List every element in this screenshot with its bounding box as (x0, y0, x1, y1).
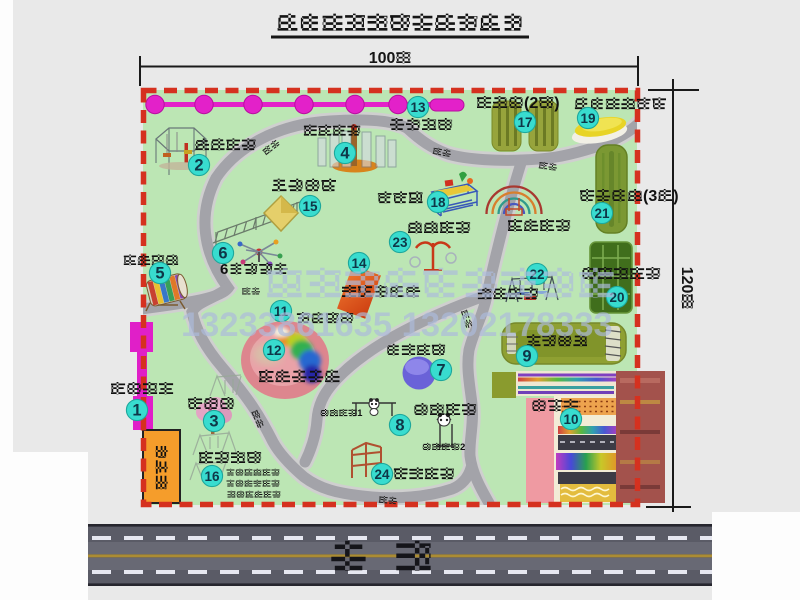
svg-text:17: 17 (517, 115, 532, 130)
svg-text:16: 16 (204, 469, 220, 484)
svg-text:1: 1 (357, 408, 362, 418)
svg-text:100: 100 (369, 50, 396, 67)
svg-text:21: 21 (594, 206, 610, 221)
svg-text:): ) (673, 188, 678, 205)
svg-text:6: 6 (218, 245, 227, 263)
svg-text:24: 24 (374, 467, 390, 482)
svg-text:3: 3 (209, 413, 218, 431)
svg-text:120: 120 (678, 267, 695, 294)
svg-text:9: 9 (522, 348, 531, 366)
svg-text:2: 2 (194, 157, 203, 175)
svg-text:19: 19 (580, 111, 595, 126)
svg-text:12: 12 (266, 343, 281, 358)
svg-text:8: 8 (395, 417, 404, 435)
svg-text:(3: (3 (643, 188, 657, 205)
svg-text:13233861635 13202178333: 13233861635 13202178333 (181, 306, 613, 344)
svg-text:20: 20 (609, 290, 624, 305)
svg-text:13: 13 (410, 100, 426, 115)
svg-text:): ) (554, 95, 559, 112)
svg-text:4: 4 (340, 145, 350, 163)
svg-text:1: 1 (132, 402, 141, 420)
svg-text:10: 10 (563, 412, 578, 427)
svg-text:18: 18 (430, 195, 446, 210)
svg-text:23: 23 (392, 235, 408, 250)
svg-text:5: 5 (155, 265, 164, 283)
svg-text:(2: (2 (524, 95, 538, 112)
svg-text:2: 2 (460, 442, 465, 453)
svg-text:15: 15 (302, 199, 318, 214)
svg-text:7: 7 (436, 362, 445, 380)
